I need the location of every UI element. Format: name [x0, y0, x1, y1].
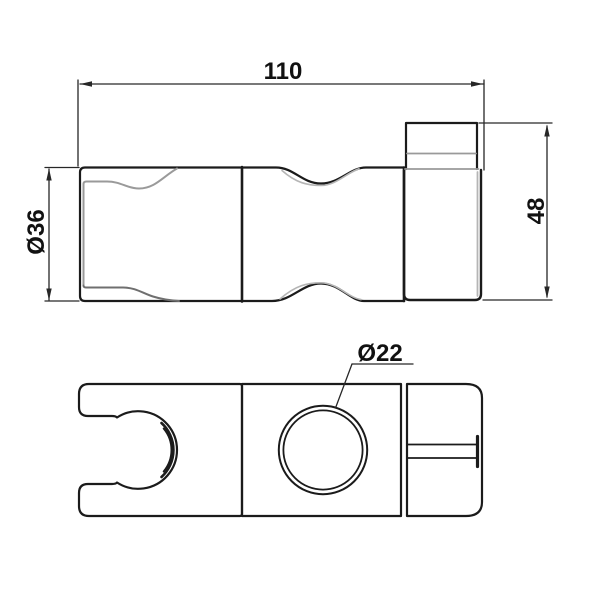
- drawing-canvas: 110 48 Ø36 Ø22: [0, 0, 600, 600]
- overall-length-label: 110: [264, 58, 303, 85]
- hole-dia-leader-line: [336, 364, 353, 408]
- collar-upper-outline: [406, 123, 477, 169]
- height-arrow-top: [544, 125, 549, 137]
- knob-block-outline: [407, 384, 482, 516]
- top-view-detail-lines: [84, 154, 479, 286]
- top-view: [80, 123, 481, 302]
- cup-dia-arrow-bottom: [46, 289, 51, 301]
- cup-side-outline: [80, 168, 242, 302]
- bottom-view: [79, 384, 482, 516]
- pivot-hole-inner-circle: [283, 410, 362, 489]
- middle-block-outline: [242, 384, 401, 516]
- cup-dia-arrow-top: [46, 169, 51, 181]
- length-arrow-left: [80, 81, 92, 86]
- waist-bottom-shading: [280, 283, 361, 300]
- collar-lower-outline: [404, 170, 481, 300]
- height-arrow-bottom: [544, 287, 549, 299]
- top-view-outline: [80, 123, 481, 302]
- cup-rim-bottom-curve: [84, 286, 180, 302]
- cup-rim-top-curve: [84, 169, 178, 189]
- top-view-detail-dark: [84, 286, 180, 302]
- cup-diameter-label: Ø36: [23, 209, 50, 254]
- length-arrow-right: [471, 81, 483, 86]
- hole-diameter-label: Ø22: [357, 340, 402, 367]
- body-bottom-edge: [242, 284, 404, 302]
- dimension-arrowheads: [46, 81, 549, 300]
- clip-block-outline: [79, 384, 242, 516]
- pivot-hole-outer-circle: [279, 406, 367, 494]
- bottom-view-outline: [79, 384, 482, 516]
- dimension-labels: 110 48 Ø36 Ø22: [23, 58, 550, 367]
- technical-drawing: 110 48 Ø36 Ø22: [0, 0, 600, 600]
- collar-height-label: 48: [523, 198, 550, 225]
- top-view-shading: [280, 169, 478, 300]
- body-top-edge: [242, 168, 404, 184]
